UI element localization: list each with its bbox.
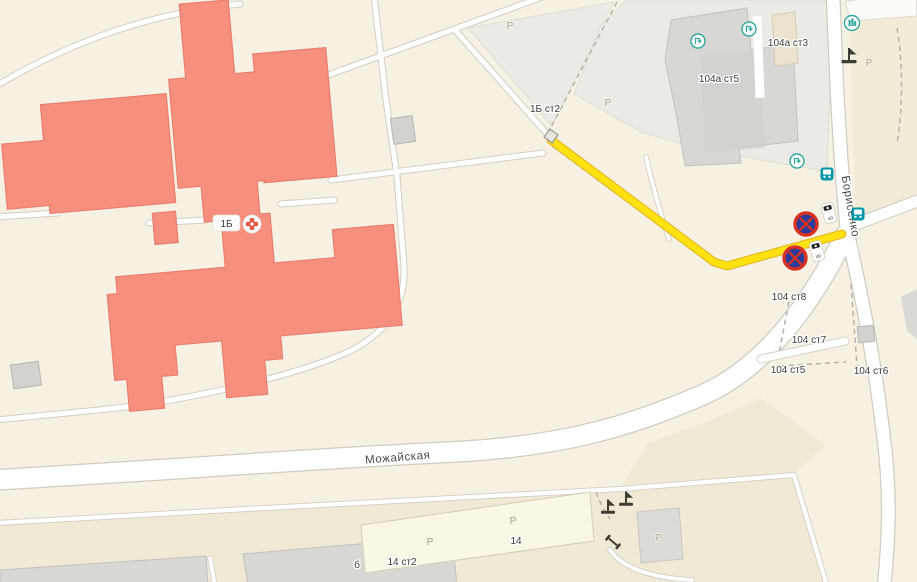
parking-label: Р <box>507 21 514 32</box>
label-104-st7: 104 ст7 <box>792 335 827 346</box>
label-104a-st3: 104а ст3 <box>768 38 809 49</box>
driveway-notch <box>757 16 760 98</box>
label-1b-st2: 1Б ст2 <box>530 104 560 115</box>
parking-label: Р <box>605 98 612 109</box>
no-stopping-sign-icon[interactable] <box>783 246 808 271</box>
small-building[interactable] <box>10 361 41 389</box>
label-104a-st5: 104а ст5 <box>699 74 740 85</box>
small-building[interactable] <box>857 325 874 342</box>
entrance-icon[interactable] <box>691 34 705 48</box>
label-14-st2: 14 ст2 <box>387 557 416 568</box>
label-104-st8: 104 ст8 <box>772 292 807 303</box>
label-letter-b: б <box>354 559 360 571</box>
no-stopping-sign-icon[interactable] <box>794 212 819 237</box>
label-104-st5: 104 ст5 <box>771 365 806 376</box>
bus-stop-icon[interactable] <box>852 208 865 221</box>
hospital-number-pill: 1Б <box>213 215 240 231</box>
parking-label: Р <box>510 516 517 527</box>
label-14: 14 <box>510 536 522 547</box>
parking-label: Р <box>656 533 663 544</box>
entrance-icon[interactable] <box>790 154 804 168</box>
map-svg: Можайская Борисенко 1Б ст2 104а ст5 104а… <box>0 0 917 582</box>
entrance-icon[interactable] <box>742 22 756 36</box>
label-104-st6: 104 ст6 <box>854 366 889 377</box>
label-1b: 1Б <box>220 219 233 230</box>
teal-poi-icon[interactable] <box>845 16 860 31</box>
parking-label: Р <box>866 58 873 69</box>
parking-label: Р <box>427 537 434 548</box>
map-canvas[interactable]: Можайская Борисенко 1Б ст2 104а ст5 104а… <box>0 0 917 582</box>
bus-stop-icon[interactable] <box>821 168 834 181</box>
hospital-cross-icon[interactable] <box>243 215 261 233</box>
paved-area-top-right <box>849 0 917 222</box>
small-building[interactable] <box>390 116 415 145</box>
